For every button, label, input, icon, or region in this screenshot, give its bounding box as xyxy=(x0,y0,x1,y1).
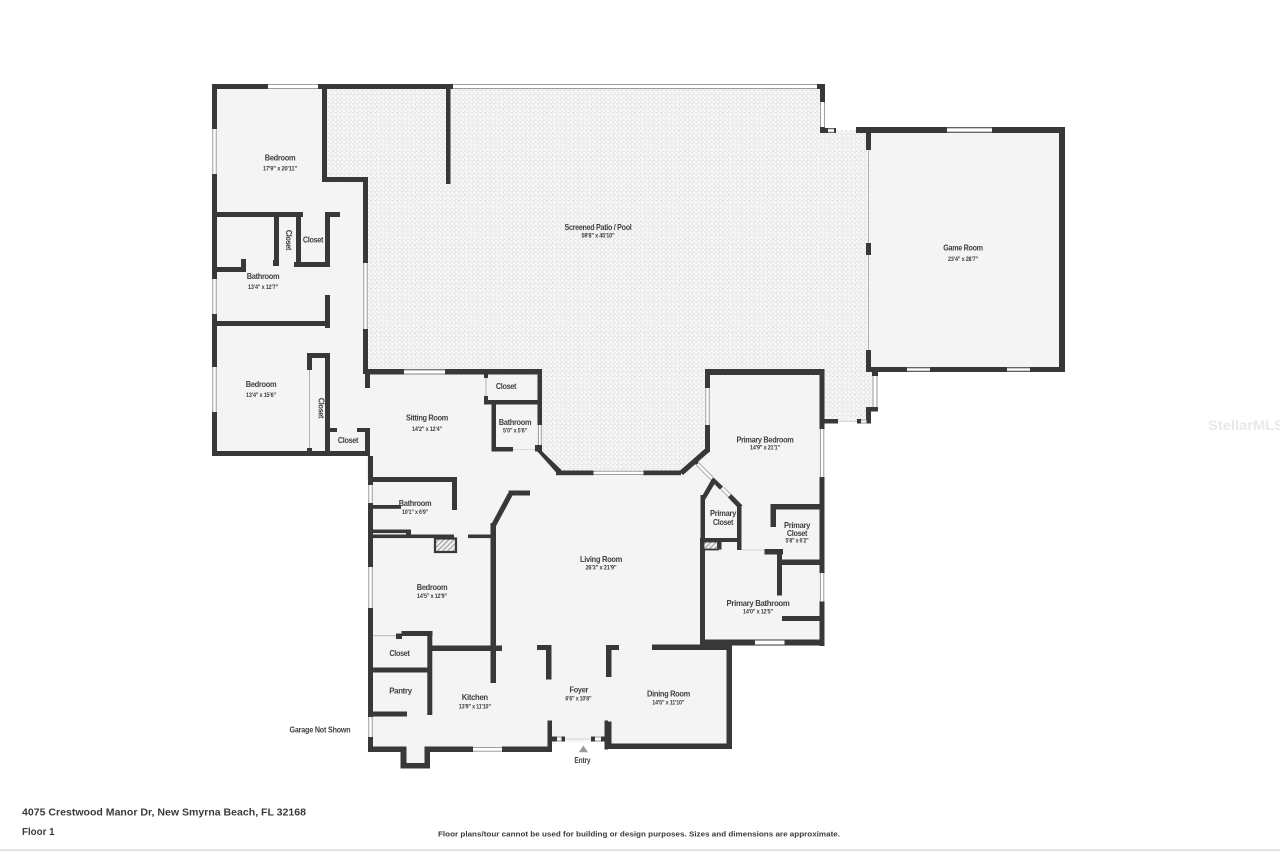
svg-text:Closet: Closet xyxy=(713,517,734,527)
svg-text:Game Room: Game Room xyxy=(943,243,983,253)
svg-text:Living Room: Living Room xyxy=(580,554,623,564)
svg-text:59’8” x 45’10”: 59’8” x 45’10” xyxy=(582,233,615,240)
svg-text:13’4” x 12’7”: 13’4” x 12’7” xyxy=(248,284,278,291)
svg-text:Entry: Entry xyxy=(574,756,591,765)
svg-text:Foyer: Foyer xyxy=(570,685,589,695)
svg-text:17’9” x 20’11”: 17’9” x 20’11” xyxy=(263,166,297,173)
svg-text:13’4” x 15’6”: 13’4” x 15’6” xyxy=(246,392,276,399)
svg-text:Bathroom: Bathroom xyxy=(247,271,280,281)
svg-text:Dining Room: Dining Room xyxy=(647,689,691,699)
svg-text:14’0” x 12’5”: 14’0” x 12’5” xyxy=(743,609,773,616)
svg-text:Floor plans/tour cannot be use: Floor plans/tour cannot be used for buil… xyxy=(438,830,840,839)
svg-text:Primary Bedroom: Primary Bedroom xyxy=(737,435,795,445)
svg-text:Closet: Closet xyxy=(389,648,410,658)
svg-text:Primary Bathroom: Primary Bathroom xyxy=(727,598,791,608)
svg-text:5’0” x 5’6”: 5’0” x 5’6” xyxy=(503,428,527,435)
svg-text:14’2” x 12’4”: 14’2” x 12’4” xyxy=(412,426,442,433)
svg-text:14’9” x 21’1”: 14’9” x 21’1” xyxy=(750,445,780,452)
svg-text:StellarMLS: StellarMLS xyxy=(1208,417,1280,433)
svg-text:5’8” x 6’2”: 5’8” x 6’2” xyxy=(786,538,809,545)
svg-text:14’5” x 12’9”: 14’5” x 12’9” xyxy=(417,593,447,600)
svg-text:Closet: Closet xyxy=(303,235,324,245)
svg-text:Sitting Room: Sitting Room xyxy=(406,413,449,423)
svg-text:4075 Crestwood Manor Dr, New S: 4075 Crestwood Manor Dr, New Smyrna Beac… xyxy=(22,807,306,819)
svg-text:Closet: Closet xyxy=(317,398,327,419)
svg-text:26’3” x 21’9”: 26’3” x 21’9” xyxy=(586,565,617,572)
svg-text:Floor 1: Floor 1 xyxy=(22,826,55,838)
svg-text:13’9” x 11’10”: 13’9” x 11’10” xyxy=(459,704,491,711)
svg-text:23’4” x 28’7”: 23’4” x 28’7” xyxy=(948,256,978,263)
svg-text:Closet: Closet xyxy=(787,528,808,538)
svg-text:14’5” x 11’10”: 14’5” x 11’10” xyxy=(652,700,684,707)
svg-text:Garage Not Shown: Garage Not Shown xyxy=(290,726,351,735)
svg-text:10’1” x 6’9”: 10’1” x 6’9” xyxy=(402,509,428,516)
svg-text:Closet: Closet xyxy=(496,381,517,391)
svg-text:Bathroom: Bathroom xyxy=(399,498,432,508)
svg-text:6’6” x 10’8”: 6’6” x 10’8” xyxy=(565,696,591,703)
svg-text:Closet: Closet xyxy=(338,435,359,445)
svg-text:Bathroom: Bathroom xyxy=(499,417,532,427)
svg-text:Bedroom: Bedroom xyxy=(265,153,296,163)
svg-text:Closet: Closet xyxy=(284,230,294,251)
svg-text:Bedroom: Bedroom xyxy=(417,582,448,592)
svg-text:Bedroom: Bedroom xyxy=(246,379,277,389)
svg-text:Pantry: Pantry xyxy=(389,686,412,696)
svg-text:Screened Patio / Pool: Screened Patio / Pool xyxy=(565,222,632,232)
svg-text:Kitchen: Kitchen xyxy=(462,692,488,702)
